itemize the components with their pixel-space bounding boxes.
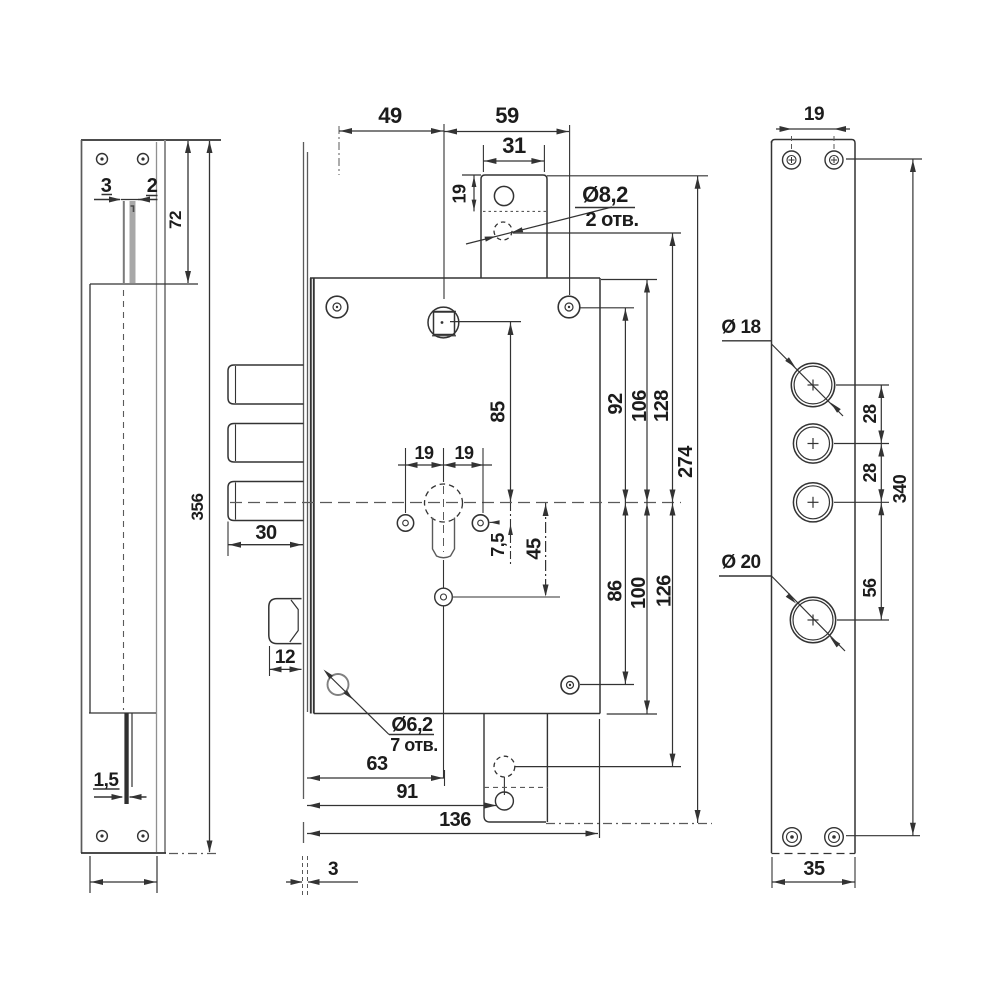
svg-text:356: 356 <box>188 494 207 521</box>
svg-text:100: 100 <box>628 577 650 609</box>
svg-text:49: 49 <box>378 103 402 128</box>
svg-text:19: 19 <box>414 443 434 463</box>
svg-text:136: 136 <box>439 809 471 831</box>
svg-text:86: 86 <box>605 580 627 602</box>
svg-text:7,5: 7,5 <box>488 533 508 557</box>
svg-text:72: 72 <box>166 211 185 229</box>
svg-text:19: 19 <box>804 104 824 125</box>
svg-text:2 отв.: 2 отв. <box>585 209 638 231</box>
svg-text:3: 3 <box>328 859 338 880</box>
svg-text:30: 30 <box>255 522 277 544</box>
svg-text:63: 63 <box>366 753 388 775</box>
svg-text:28: 28 <box>860 463 880 483</box>
svg-text:19: 19 <box>450 184 470 204</box>
svg-text:Ø 20: Ø 20 <box>721 552 760 573</box>
svg-text:85: 85 <box>488 401 510 423</box>
svg-text:19: 19 <box>454 443 474 463</box>
svg-text:31: 31 <box>502 133 526 158</box>
svg-text:59: 59 <box>495 103 519 128</box>
svg-text:Ø 18: Ø 18 <box>721 317 760 338</box>
svg-text:126: 126 <box>654 575 676 607</box>
svg-text:45: 45 <box>524 538 546 560</box>
svg-text:128: 128 <box>651 390 673 422</box>
svg-text:3: 3 <box>101 175 112 197</box>
svg-text:92: 92 <box>605 393 627 415</box>
svg-text:56: 56 <box>860 578 880 598</box>
svg-text:12: 12 <box>275 647 295 668</box>
svg-text:2: 2 <box>147 175 158 197</box>
svg-text:28: 28 <box>860 404 880 424</box>
svg-text:1,5: 1,5 <box>94 770 120 791</box>
svg-text:106: 106 <box>629 390 651 422</box>
svg-text:274: 274 <box>675 445 697 478</box>
svg-text:91: 91 <box>396 781 418 803</box>
svg-text:Ø8,2: Ø8,2 <box>582 182 628 207</box>
svg-text:35: 35 <box>803 858 825 880</box>
svg-text:Ø6,2: Ø6,2 <box>391 714 433 736</box>
svg-text:340: 340 <box>890 474 910 503</box>
svg-text:7 отв.: 7 отв. <box>390 735 437 755</box>
